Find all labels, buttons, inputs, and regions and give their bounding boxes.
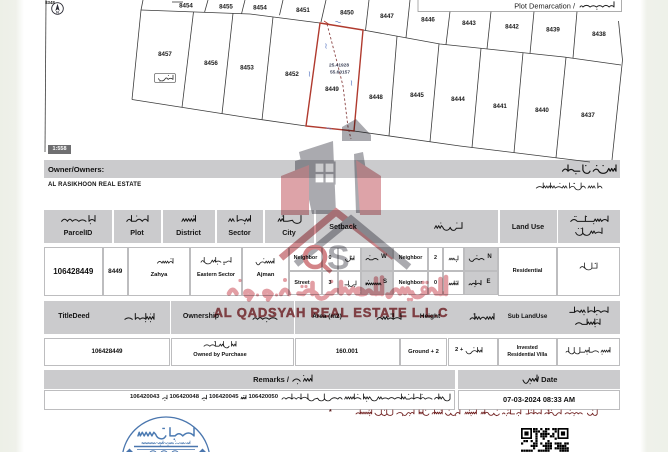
svg-text:S: S (327, 239, 350, 277)
svg-text:AL QADSYAH REAL ESTATE L.L.C: AL QADSYAH REAL ESTATE L.L.C (214, 305, 449, 320)
